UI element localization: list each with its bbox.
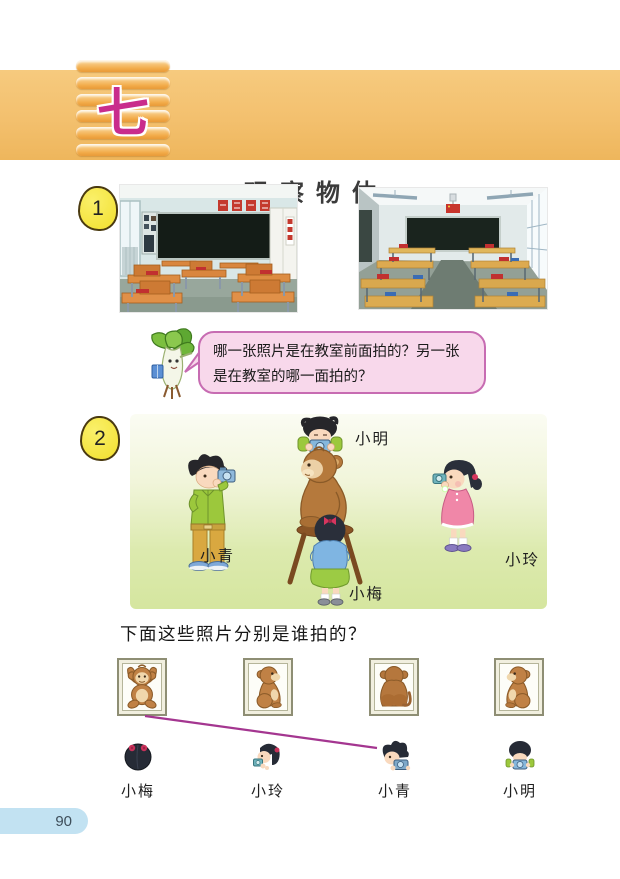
monkey-photo-frame-3 bbox=[369, 658, 419, 716]
scene-label-xiaomei: 小梅 bbox=[349, 582, 384, 604]
textbook-page: 观察物体 七 1 bbox=[0, 0, 620, 879]
frame-inner bbox=[499, 663, 539, 711]
child-xiaoming: 小明 bbox=[480, 740, 560, 801]
child-xiaomei: 小梅 bbox=[98, 740, 178, 801]
child-name: 小明 bbox=[480, 780, 560, 801]
classroom-photo-left bbox=[120, 185, 297, 312]
scene-label-xiaoming: 小明 bbox=[355, 427, 390, 449]
classroom-photo-right bbox=[359, 188, 547, 309]
child-name: 小玲 bbox=[228, 780, 308, 801]
national-flag bbox=[446, 204, 460, 213]
xiaoling-figure bbox=[433, 460, 482, 552]
photo-scene bbox=[130, 414, 547, 609]
unit-number: 七 bbox=[76, 60, 170, 156]
question-text: 下面这些照片分别是谁拍的？ bbox=[120, 621, 367, 646]
monkey-right-side-view-icon bbox=[249, 664, 287, 710]
unit-number-emblem: 七 bbox=[76, 60, 170, 156]
classroom-back-wall-illustration bbox=[120, 185, 297, 312]
section-2-badge: 2 bbox=[80, 416, 120, 461]
page-number-pill: 90 bbox=[0, 808, 88, 834]
child-name: 小青 bbox=[355, 780, 435, 801]
speech-line-2: 是在教室的哪一面拍的？ bbox=[213, 365, 478, 390]
frame-inner bbox=[248, 663, 288, 711]
scene-label-xiaoqing: 小青 bbox=[200, 544, 235, 566]
child-xiaoling: 小玲 bbox=[228, 740, 308, 801]
child-name: 小梅 bbox=[98, 780, 178, 801]
child-xiaoqing: 小青 bbox=[355, 740, 435, 801]
scene-label-xiaoling: 小玲 bbox=[505, 548, 540, 570]
scene-illustration bbox=[130, 414, 547, 609]
frame-inner bbox=[122, 663, 162, 711]
frame-inner bbox=[374, 663, 414, 711]
speech-bubble: 哪一张照片是在教室前面拍的？另一张 是在教室的哪一面拍的？ bbox=[198, 331, 486, 394]
xiaomei-figure bbox=[310, 515, 349, 606]
page-number: 90 bbox=[55, 813, 72, 830]
monkey-photo-frame-2 bbox=[243, 658, 293, 716]
monkey-back-view-icon bbox=[375, 664, 413, 710]
monkey-front-view-icon bbox=[123, 664, 161, 710]
xiaoling-avatar-icon bbox=[253, 740, 283, 773]
speech-line-1: 哪一张照片是在教室前面拍的？另一张 bbox=[213, 340, 478, 365]
section-1-badge: 1 bbox=[78, 186, 118, 231]
xiaoqing-avatar-icon bbox=[379, 740, 411, 773]
monkey-left-side-view-icon bbox=[500, 664, 538, 710]
monkey-photo-frame-1 bbox=[117, 658, 167, 716]
monkey-photo-frame-4 bbox=[494, 658, 544, 716]
xiaomei-top-view-icon bbox=[123, 740, 153, 773]
classroom-front-wall-illustration bbox=[359, 188, 547, 309]
xiaoming-avatar-icon bbox=[505, 740, 535, 773]
